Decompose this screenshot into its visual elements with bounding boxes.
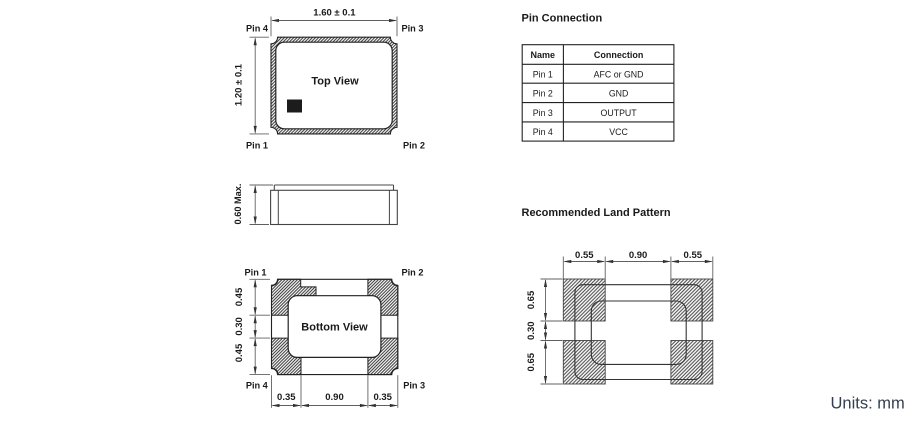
svg-text:Connection: Connection bbox=[594, 50, 644, 60]
svg-text:Pin 1: Pin 1 bbox=[246, 141, 268, 151]
svg-text:1.20 ± 0.1: 1.20 ± 0.1 bbox=[234, 63, 245, 106]
svg-text:OUTPUT: OUTPUT bbox=[601, 108, 638, 118]
svg-text:0.60 Max.: 0.60 Max. bbox=[233, 184, 243, 225]
svg-text:0.55: 0.55 bbox=[684, 250, 703, 261]
svg-text:VCC: VCC bbox=[609, 127, 628, 137]
svg-text:AFC or GND: AFC or GND bbox=[594, 69, 644, 79]
svg-text:Bottom View: Bottom View bbox=[301, 322, 368, 334]
svg-text:Pin 4: Pin 4 bbox=[246, 381, 269, 391]
svg-text:Pin 1: Pin 1 bbox=[245, 268, 267, 278]
svg-text:0.30: 0.30 bbox=[234, 317, 245, 336]
svg-text:Units: mm: Units: mm bbox=[831, 395, 905, 413]
svg-text:0.90: 0.90 bbox=[629, 250, 648, 261]
svg-text:GND: GND bbox=[609, 89, 629, 99]
svg-text:0.30: 0.30 bbox=[526, 321, 537, 340]
svg-text:Name: Name bbox=[531, 50, 556, 60]
svg-text:0.90: 0.90 bbox=[325, 392, 344, 403]
svg-text:0.35: 0.35 bbox=[277, 392, 296, 403]
svg-text:Pin 4: Pin 4 bbox=[246, 24, 269, 34]
svg-text:Pin 3: Pin 3 bbox=[533, 108, 553, 118]
svg-text:0.45: 0.45 bbox=[234, 343, 245, 362]
svg-text:Pin 3: Pin 3 bbox=[402, 24, 424, 34]
svg-text:Top View: Top View bbox=[311, 76, 359, 88]
svg-text:Pin 2: Pin 2 bbox=[402, 268, 424, 278]
svg-text:0.55: 0.55 bbox=[575, 250, 594, 261]
svg-text:0.65: 0.65 bbox=[526, 290, 537, 309]
svg-text:Pin 1: Pin 1 bbox=[533, 69, 553, 79]
svg-text:0.65: 0.65 bbox=[526, 352, 537, 371]
svg-text:0.45: 0.45 bbox=[234, 287, 245, 306]
svg-text:Pin Connection: Pin Connection bbox=[522, 13, 603, 25]
svg-text:0.35: 0.35 bbox=[373, 392, 392, 403]
svg-text:1.60 ± 0.1: 1.60 ± 0.1 bbox=[313, 8, 356, 19]
svg-text:Pin 3: Pin 3 bbox=[403, 381, 425, 391]
svg-text:Pin 2: Pin 2 bbox=[403, 141, 425, 151]
svg-text:Pin 4: Pin 4 bbox=[533, 127, 553, 137]
svg-text:Pin 2: Pin 2 bbox=[533, 89, 553, 99]
svg-text:Recommended Land Pattern: Recommended Land Pattern bbox=[522, 207, 671, 219]
